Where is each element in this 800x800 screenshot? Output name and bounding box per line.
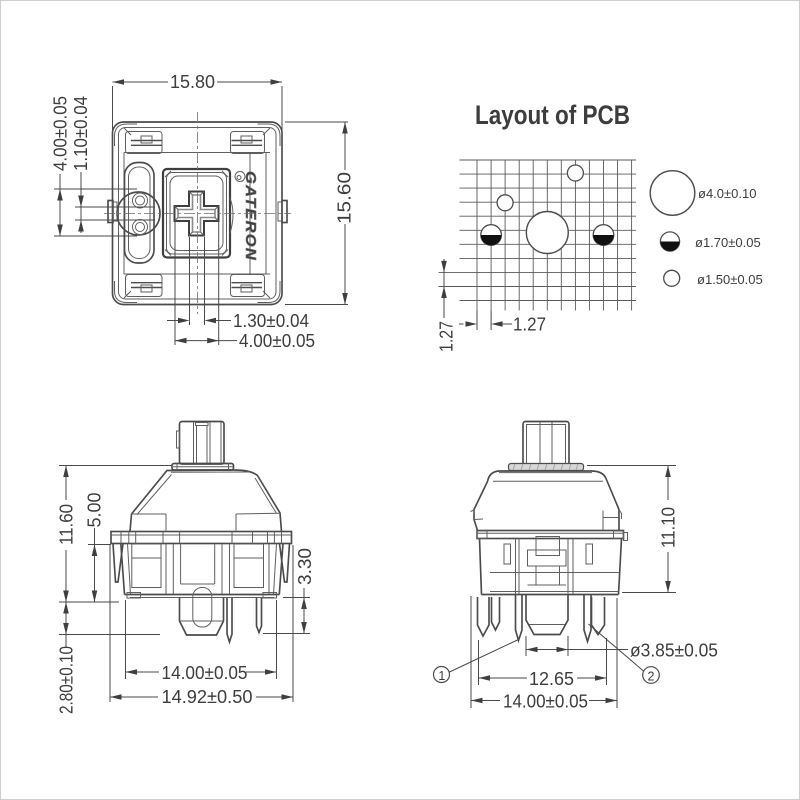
svg-text:1.27: 1.27 [436, 321, 457, 352]
svg-text:2.80±0.10: 2.80±0.10 [56, 646, 77, 714]
svg-text:5.00: 5.00 [84, 493, 105, 528]
svg-text:2: 2 [648, 669, 655, 683]
svg-text:11.10: 11.10 [658, 507, 679, 548]
svg-text:1: 1 [438, 669, 445, 683]
svg-text:1.27: 1.27 [513, 314, 546, 335]
svg-text:15.60: 15.60 [334, 172, 355, 224]
svg-text:15.80: 15.80 [170, 71, 215, 92]
svg-text:3.30: 3.30 [294, 548, 315, 585]
svg-text:4.00±0.05: 4.00±0.05 [239, 330, 315, 351]
svg-text:ø1.50±0.05: ø1.50±0.05 [697, 272, 763, 287]
svg-text:14.00±0.05: 14.00±0.05 [503, 691, 588, 712]
svg-text:14.00±0.05: 14.00±0.05 [162, 662, 248, 683]
svg-text:14.92±0.50: 14.92±0.50 [162, 686, 253, 707]
svg-text:1.10±0.04: 1.10±0.04 [70, 96, 91, 171]
svg-text:ø1.70±0.05: ø1.70±0.05 [695, 235, 761, 250]
svg-text:12.65: 12.65 [529, 668, 574, 689]
svg-text:ø3.85±0.05: ø3.85±0.05 [630, 640, 718, 661]
svg-text:ø4.0±0.10: ø4.0±0.10 [698, 186, 756, 201]
svg-text:4.00±0.05: 4.00±0.05 [50, 96, 71, 171]
svg-text:GATERON: GATERON [242, 171, 259, 261]
svg-text:Layout of PCB: Layout of PCB [475, 100, 630, 130]
svg-text:1.30±0.04: 1.30±0.04 [233, 310, 309, 331]
svg-text:11.60: 11.60 [56, 504, 77, 545]
